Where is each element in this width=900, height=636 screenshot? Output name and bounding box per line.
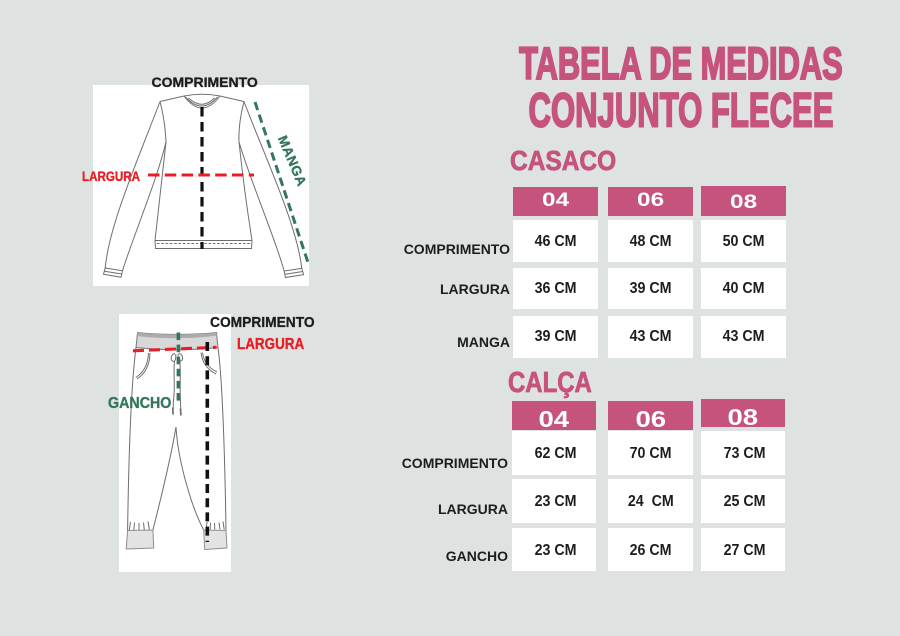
- svg-text:CONJUNTO FLECEE: CONJUNTO FLECEE: [529, 85, 834, 138]
- svg-text:TABELA DE MEDIDAS: TABELA DE MEDIDAS: [519, 38, 843, 89]
